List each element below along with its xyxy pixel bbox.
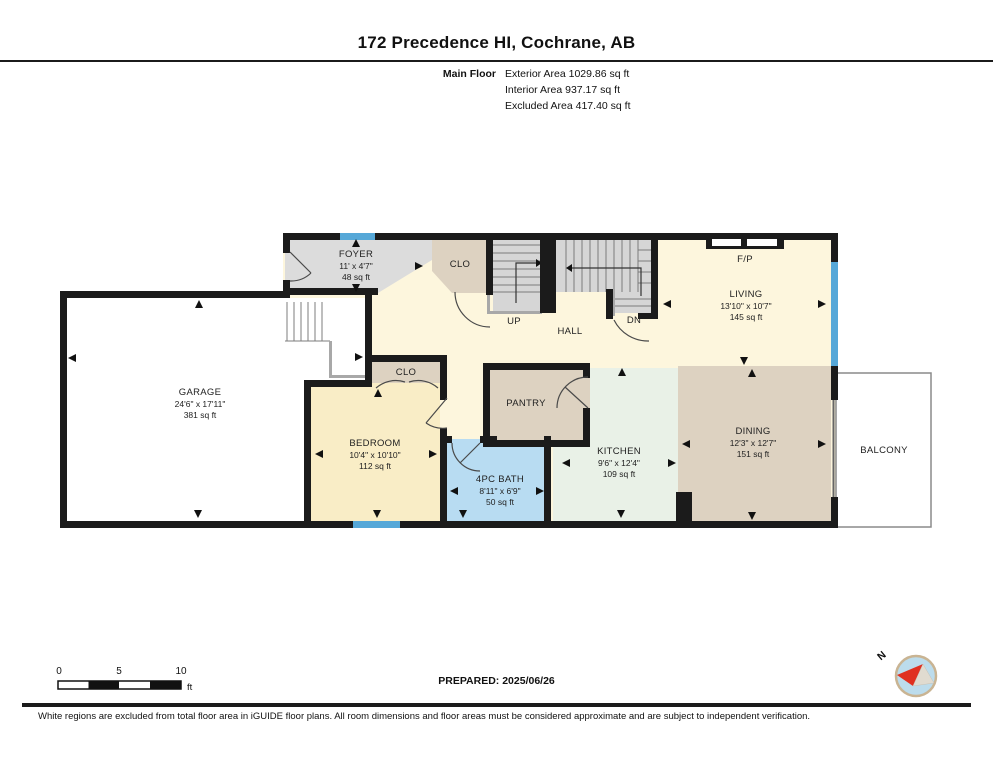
room-fills [67, 233, 838, 528]
stair-label-up: UP [507, 316, 521, 328]
floorplan-page: 172 Precedence HI, Cochrane, AB Main Flo… [0, 0, 993, 768]
room-label-garage: GARAGE 24'6" x 17'11" 381 sq ft [175, 387, 226, 421]
room-label-bedroom: BEDROOM 10'4" x 10'10" 112 sq ft [349, 438, 400, 472]
fireplace-label: F/P [737, 254, 753, 266]
room-label-bedroom-closet: CLO [396, 367, 416, 379]
window-icon [340, 233, 375, 240]
stair-label-down: DN [627, 315, 641, 327]
room-label-pantry: PANTRY [506, 398, 545, 410]
room-label-kitchen: KITCHEN 9'6" x 12'4" 109 sq ft [597, 446, 641, 480]
window-icon [831, 262, 838, 366]
footer-divider [22, 703, 971, 707]
room-label-dining: DINING 12'3" x 12'7" 151 sq ft [730, 426, 777, 460]
room-label-foyer-closet: CLO [450, 259, 470, 271]
window-icon [353, 521, 400, 528]
footer-disclaimer: White regions are excluded from total fl… [38, 711, 968, 722]
room-label-foyer: FOYER 11' x 4'7" 48 sq ft [339, 249, 373, 283]
room-label-balcony: BALCONY [860, 445, 908, 457]
room-label-bath: 4PC BATH 8'11" x 6'9" 50 sq ft [476, 474, 524, 508]
floor-plan-canvas [0, 0, 993, 768]
prepared-date: PREPARED: 2025/06/26 [0, 675, 993, 687]
room-label-hall: HALL [558, 326, 583, 338]
room-label-living: LIVING 13'10" x 10'7" 145 sq ft [720, 289, 771, 323]
